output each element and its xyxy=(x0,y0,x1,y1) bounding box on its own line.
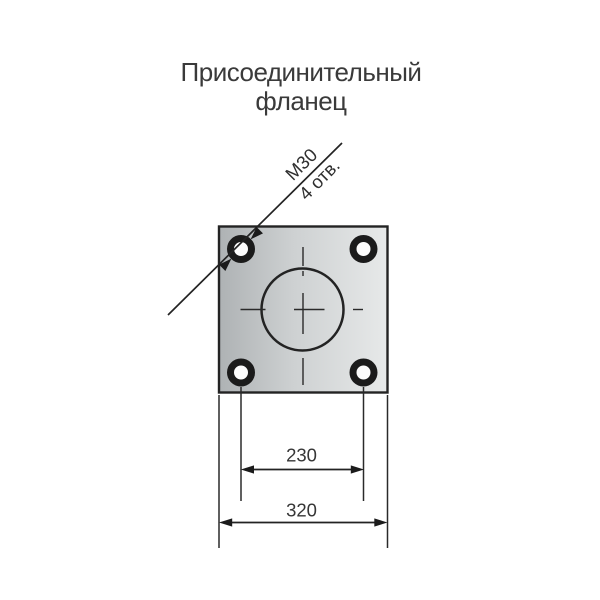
bolt-hole-bottom-right xyxy=(353,362,374,383)
bolt-hole-bottom-left xyxy=(231,362,252,383)
dimension-320-value: 320 xyxy=(286,500,317,521)
dimension-320-arrow-right xyxy=(374,518,387,526)
drawing-title-line-2: фланец xyxy=(255,86,347,116)
dimension-230-value: 230 xyxy=(286,445,317,466)
dimension-230-arrow-left xyxy=(241,465,254,473)
dimension-320-arrow-left xyxy=(219,518,232,526)
bolt-hole-top-right xyxy=(353,239,374,260)
dimension-230-arrow-right xyxy=(351,465,364,473)
callout-labels: М30 4 отв. xyxy=(278,138,344,204)
extension-lines xyxy=(219,387,388,548)
drawing-title-line-1: Присоединительный xyxy=(181,57,422,87)
flange-drawing-page: Присоединительный фланец М3 xyxy=(0,0,600,600)
flange-drawing-canvas: Присоединительный фланец М3 xyxy=(0,0,600,600)
